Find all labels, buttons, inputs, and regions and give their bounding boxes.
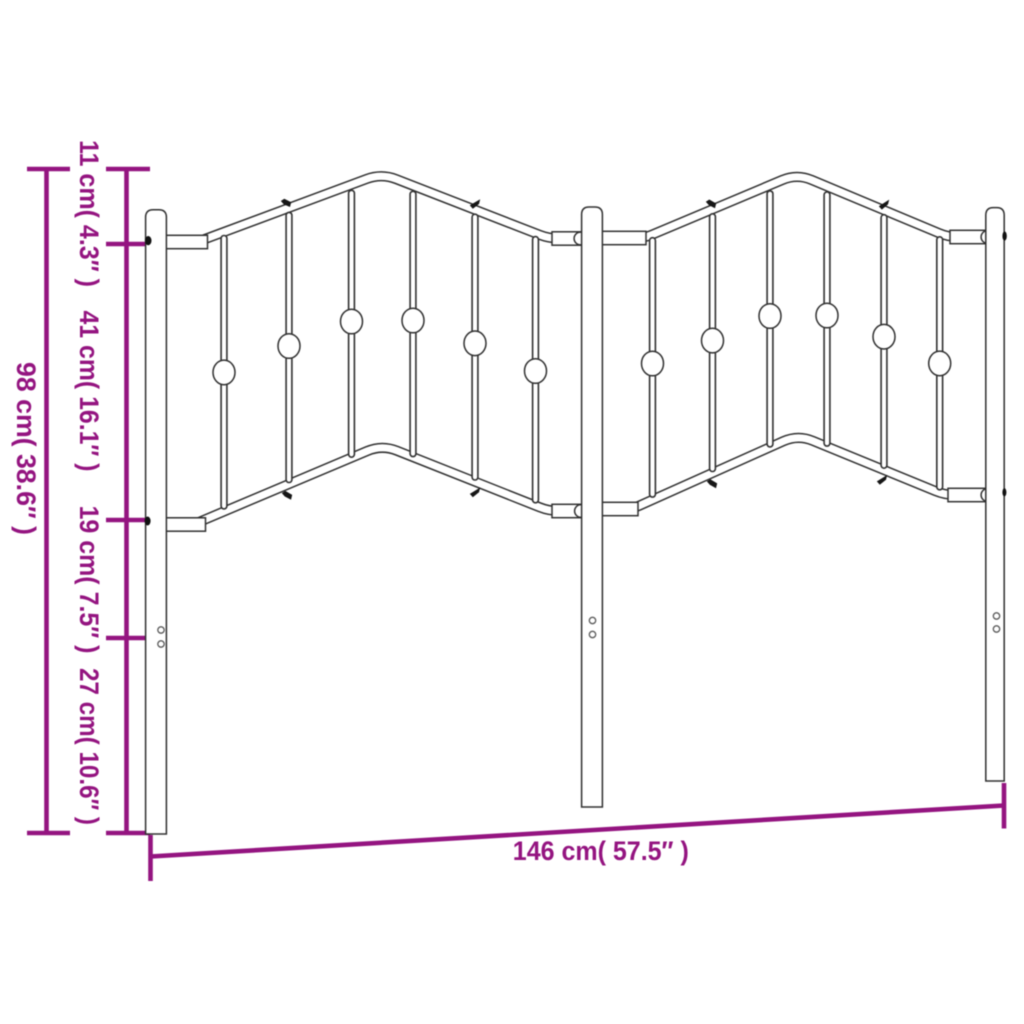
svg-text:27 cm( 10.6″ ): 27 cm( 10.6″ )	[74, 668, 104, 825]
svg-text:98 cm( 38.6″ ): 98 cm( 38.6″ )	[11, 362, 41, 535]
svg-text:11 cm( 4.3″ ): 11 cm( 4.3″ )	[74, 140, 104, 287]
svg-text:19 cm( 7.5″ ): 19 cm( 7.5″ )	[74, 506, 104, 654]
svg-text:41 cm( 16.1″ ): 41 cm( 16.1″ )	[74, 311, 104, 472]
svg-text:146 cm( 57.5″ ): 146 cm( 57.5″ )	[513, 836, 689, 866]
